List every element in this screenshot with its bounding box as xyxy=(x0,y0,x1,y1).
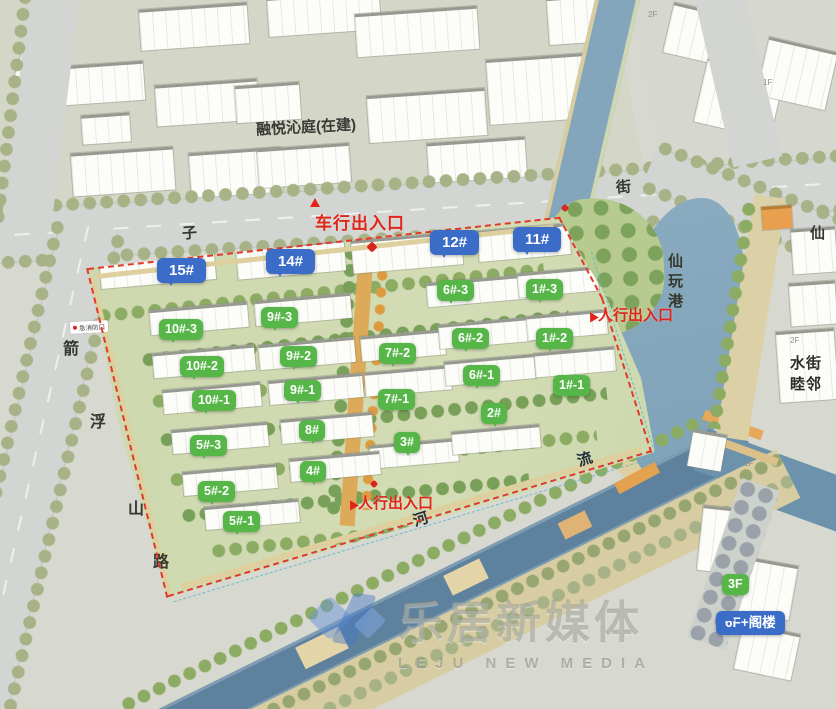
building-label-9-1: 9#-1 xyxy=(284,380,321,401)
entrance-arrow-icon xyxy=(310,193,320,207)
floor-tag: 1F xyxy=(763,78,772,87)
building-shape xyxy=(687,429,727,471)
floor-tag: 2F xyxy=(790,336,799,345)
site-plan-map: 子 街 仙 箭 浮 山 路 仙玩港 河 流 水街睦邻 融悦沁庭(在建) 2F 1… xyxy=(0,0,836,709)
building-label-6-3: 6#-3 xyxy=(437,280,474,301)
building-shape xyxy=(367,88,488,143)
building-label-2: 2# xyxy=(481,403,507,424)
building-shape xyxy=(71,146,176,196)
building-label-5-2: 5#-2 xyxy=(198,481,235,502)
building-label-8: 8# xyxy=(299,420,325,441)
building-label-5-1: 5#-1 xyxy=(223,511,260,532)
building-label-6-2: 6#-2 xyxy=(452,328,489,349)
street-label-zi: 子 xyxy=(181,221,198,243)
floor-tag: 1F xyxy=(744,459,753,468)
building-label-6f-attic: 6F+阁楼 xyxy=(716,611,785,635)
building-label-10-3: 10#-3 xyxy=(159,319,203,340)
floor-tag: 2F xyxy=(648,10,657,19)
building-label-5-3: 5#-3 xyxy=(190,435,227,456)
building-label-11: 11# xyxy=(513,227,561,252)
building-label-3f: 3F xyxy=(722,574,749,595)
building-label-14: 14# xyxy=(266,249,315,274)
building-label-1-2: 1#-2 xyxy=(536,328,573,349)
street-label-jian: 箭 xyxy=(63,335,80,359)
building-label-1-1: 1#-1 xyxy=(553,375,590,396)
building-label-10-1: 10#-1 xyxy=(192,390,236,411)
building-shape xyxy=(355,6,480,57)
pedestrian-entrance-bottom-label: 人行出入口 xyxy=(358,492,433,513)
building-label-10-2: 10#-2 xyxy=(180,356,224,377)
building-shape xyxy=(761,205,793,230)
building-shape xyxy=(81,112,131,144)
building-label-7-1: 7#-1 xyxy=(378,389,415,410)
pedestrian-entrance-right-label: 人行出入口 xyxy=(598,304,673,325)
building-label-15: 15# xyxy=(157,258,206,283)
street-label-xian: 仙 xyxy=(810,222,826,243)
east-block-label: 水街睦邻 xyxy=(790,352,836,394)
vehicle-entrance-label: 车行出入口 xyxy=(315,209,405,234)
building-label-9-2: 9#-2 xyxy=(280,346,317,367)
street-label-fu: 浮 xyxy=(90,408,107,432)
building-label-9-3: 9#-3 xyxy=(261,307,298,328)
building-shape xyxy=(139,2,250,50)
fire-hydrant-icon xyxy=(73,326,77,330)
building-shape xyxy=(789,280,836,326)
building-label-1-3: 1#-3 xyxy=(526,279,563,300)
building-label-4: 4# xyxy=(300,461,326,482)
street-label-jie: 街 xyxy=(615,175,632,197)
building-label-12: 12# xyxy=(430,230,479,255)
building-label-6-1: 6#-1 xyxy=(463,365,500,386)
building-label-3: 3# xyxy=(394,432,420,453)
building-label-7-2: 7#-2 xyxy=(379,343,416,364)
